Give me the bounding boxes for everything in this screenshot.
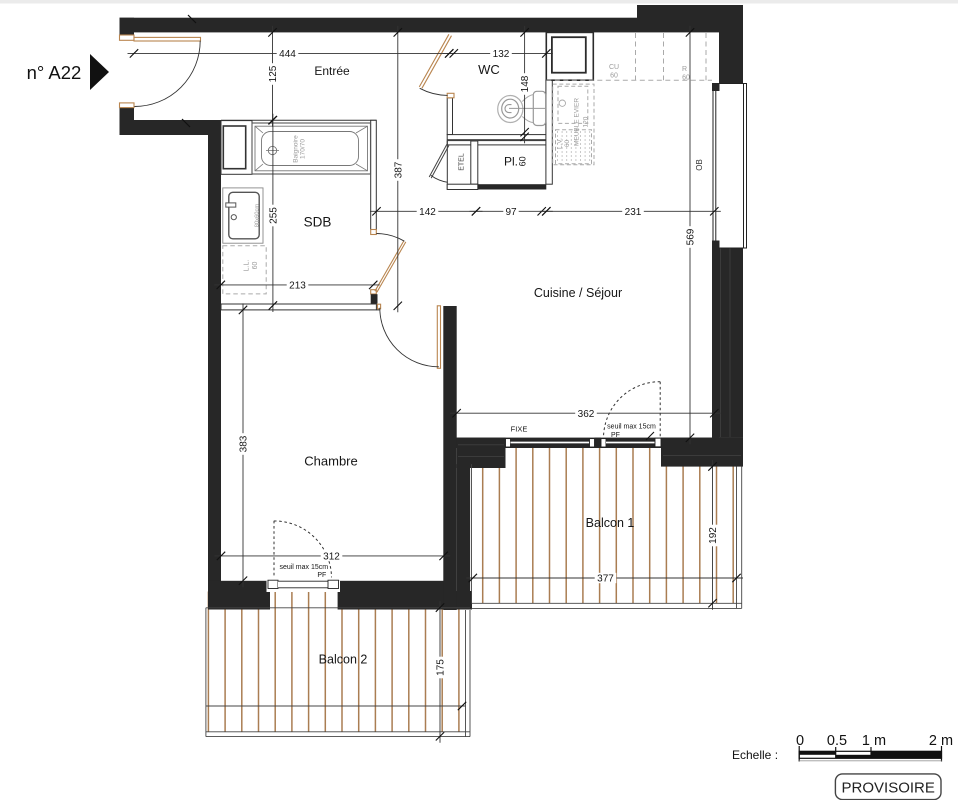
svg-text:Echelle :: Echelle : [732,748,778,762]
svg-text:231: 231 [625,207,642,218]
svg-text:97: 97 [505,207,517,218]
svg-text:192: 192 [708,527,719,544]
svg-text:0.5: 0.5 [827,733,847,749]
svg-text:444: 444 [279,49,296,60]
svg-text:60: 60 [252,262,259,270]
svg-text:60: 60 [610,73,618,80]
svg-text:255: 255 [269,207,280,224]
svg-text:WC: WC [478,62,500,77]
svg-text:R: R [682,66,687,73]
svg-text:60: 60 [682,75,690,82]
svg-text:312: 312 [323,552,340,563]
svg-text:387: 387 [393,161,404,178]
svg-text:148: 148 [520,75,531,92]
svg-text:Balcon 2: Balcon 2 [319,653,368,667]
svg-text:Pl.: Pl. [504,155,518,169]
svg-text:Baignoire: Baignoire [293,135,300,163]
svg-text:362: 362 [578,409,595,420]
svg-text:PF: PF [317,572,326,579]
svg-text:MEUBLE EVIER: MEUBLE EVIER [574,98,581,146]
svg-text:125: 125 [268,65,279,82]
svg-text:1 m: 1 m [862,733,886,749]
svg-text:60: 60 [564,140,571,148]
svg-text:383: 383 [239,435,250,452]
svg-text:80x60cm: 80x60cm [254,204,260,228]
svg-text:seuil max 15cm: seuil max 15cm [607,423,656,430]
svg-text:569: 569 [686,228,697,245]
svg-text:FIXE: FIXE [511,425,528,434]
svg-text:OB: OB [695,159,704,171]
svg-text:Chambre: Chambre [304,454,357,469]
svg-text:PF: PF [611,432,620,439]
svg-text:0: 0 [796,733,804,749]
svg-text:L.V.: L.V. [557,138,564,149]
svg-text:142: 142 [419,207,436,218]
svg-text:213: 213 [289,281,306,292]
svg-text:L.L.: L.L. [244,260,251,272]
svg-text:SDB: SDB [304,215,332,230]
svg-text:seuil max 15cm: seuil max 15cm [279,564,328,571]
svg-text:132: 132 [493,49,510,60]
svg-text:Entrée: Entrée [314,64,350,78]
svg-text:170/70: 170/70 [300,139,307,159]
svg-text:60: 60 [518,156,528,166]
svg-text:120: 120 [583,116,590,127]
svg-text:PROVISOIRE: PROVISOIRE [842,779,935,796]
svg-text:n° A22: n° A22 [27,62,82,83]
svg-text:ETEL: ETEL [459,153,466,171]
svg-text:CU: CU [609,64,619,71]
svg-text:Cuisine / Séjour: Cuisine / Séjour [534,286,622,300]
svg-text:2 m: 2 m [929,733,953,749]
svg-text:Balcon 1: Balcon 1 [586,516,635,530]
svg-text:377: 377 [597,574,614,585]
svg-text:175: 175 [436,659,447,676]
